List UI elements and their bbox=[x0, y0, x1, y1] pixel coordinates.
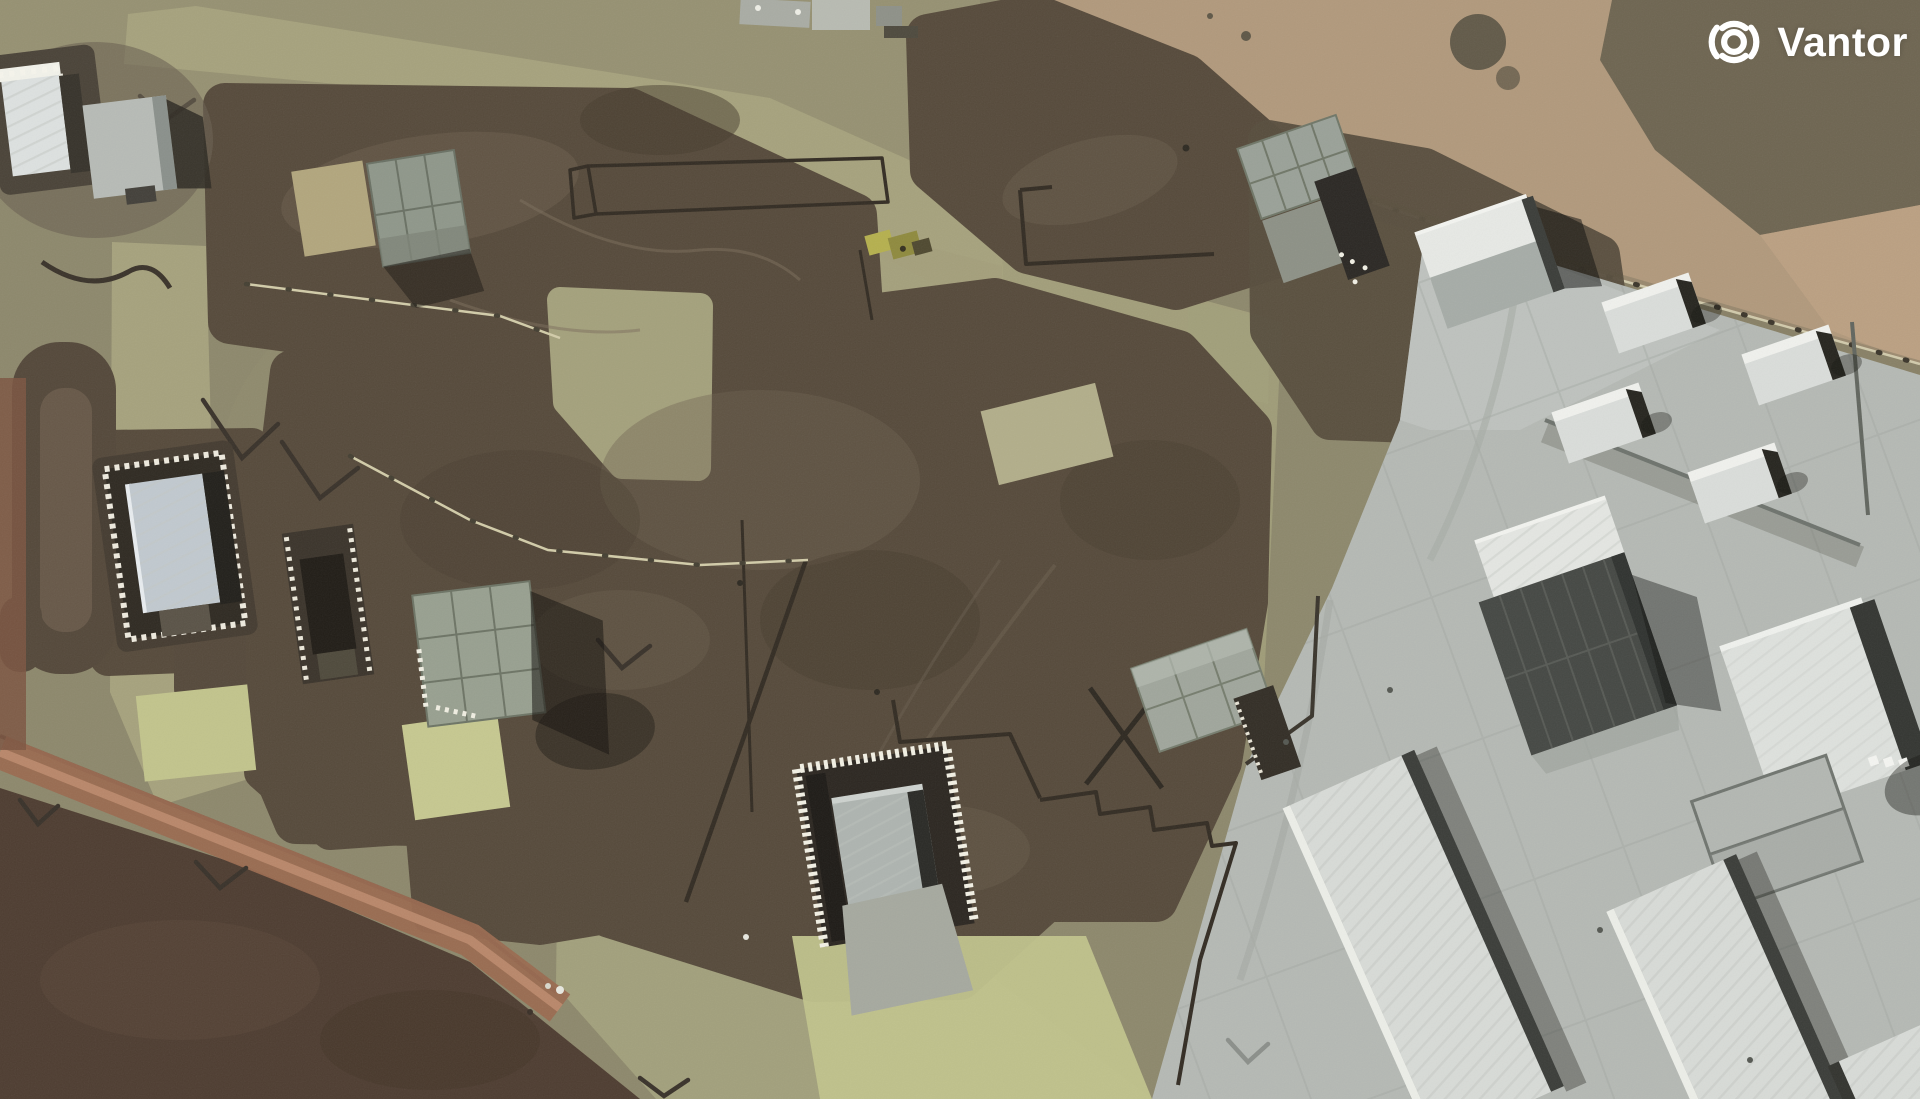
satellite-image: Vantor bbox=[0, 0, 1920, 1099]
grain-texture bbox=[0, 0, 1920, 1099]
watermark-brand: Vantor bbox=[1777, 19, 1908, 66]
satellite-scene bbox=[0, 0, 1920, 1099]
watermark: Vantor bbox=[1706, 14, 1908, 70]
vantor-aperture-icon bbox=[1706, 14, 1762, 70]
